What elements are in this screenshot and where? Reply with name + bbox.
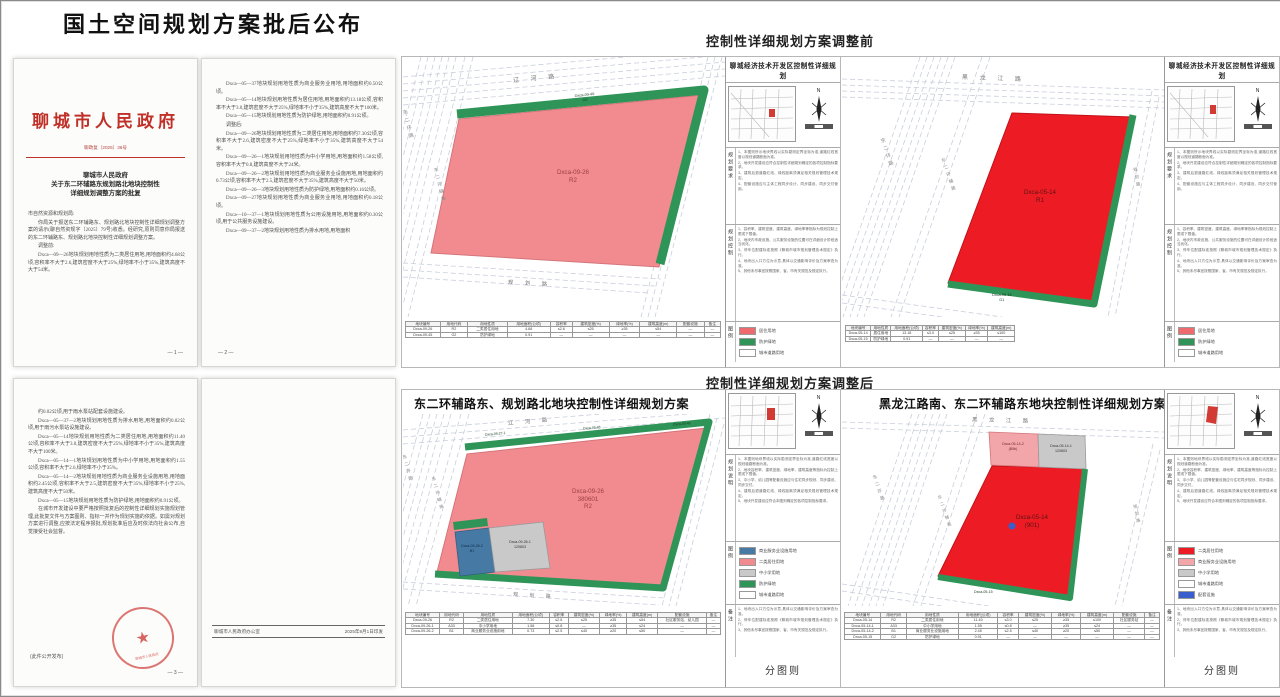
doc4-footer-office: 聊城市人民政府办公室 [214, 629, 260, 635]
mapC-index-table: 地块编号用地代码用地性质用地面积(公顷)容积率建筑密度(%)绿地率(%)建筑高度… [405, 612, 721, 635]
section-label-note: 备注 [1165, 605, 1175, 657]
mapC-parcel-label: Dxca-09-26380601R2 [548, 488, 628, 511]
mapD-drawing: 黑 龙 江 路 东二环路 东二环辅路 规划路 Dxca-05-14(901) D… [842, 414, 1164, 606]
doc1-agency: 聊城市人民政府 [14, 107, 197, 132]
legend-label: 城市道路用地 [1198, 581, 1223, 587]
north-label: N [1256, 395, 1260, 401]
doc-page-4: 聊城市人民政府办公室 2025年9月1日印发 [201, 378, 396, 687]
seal-text: 聊城市人民政府 [118, 648, 176, 665]
mapD-sidebar: N 规划说明 1、本图则地块界线以实际勘测定界坐标为准,道路红线宽度以规划道路断… [1164, 390, 1279, 687]
mapC-remark-notes: 1、地块出入口方位为示意,具体以交通影响评价及方案审查为准。2、停车位配建标准按… [736, 605, 840, 657]
legend-swatch [1178, 327, 1195, 336]
doc-page-1: 聊城市人民政府 聊政复〔2025〕36号 聊城市人民政府 关于东二环辅路东规划路… [13, 58, 198, 367]
doc1-body: 市自然资源和规划局: 你局关于报送东二环辅路东、规划路北地块控制性详细规划调整方… [28, 211, 185, 276]
mapB-ctrl-notes: 1、容积率、建筑密度、建筑高度、绿地率等指标为规划控制上限或下限值。2、地块内市… [1175, 225, 1279, 321]
doc3-page-no: — 3 — [167, 670, 183, 676]
mapD-green-label: Dxca-05-15 [974, 590, 993, 595]
doc1-page-no: — 1 — [167, 350, 183, 356]
north-arrow-icon [810, 403, 828, 429]
seal-star-icon: ★ [134, 627, 152, 650]
mapD-commercial-label: Dxca-05-14-2(B5b) [990, 442, 1036, 451]
mapC-legend: 商业服务业设施用地二类居住用地中小学用地防护绿地城市道路用地 [736, 544, 840, 602]
doc1-title: 聊城市人民政府 关于东二环辅路东规划路北地块控制性 详细规划调整方案的批复 [14, 171, 197, 198]
legend-label: 防护绿地 [1198, 339, 1215, 345]
mapD-remark-notes: 1、地块出入口方位为示意,具体以交通影响评价及方案审查为准。2、停车位配建标准按… [1175, 605, 1279, 657]
section-label-legend: 图例 [1165, 542, 1175, 604]
legend-swatch [1178, 338, 1195, 347]
legend-swatch [739, 591, 756, 600]
section-label-legend: 图例 [726, 542, 736, 604]
key-map [1167, 393, 1235, 449]
map-panel-after-right: 黑龙江路南、东二环辅路东地块控制性详细规划方案 黑 龙 江 路 东二环路 [840, 389, 1280, 688]
legend-label: 商业服务业设施用地 [759, 548, 797, 554]
mapA-req-notes: 1、本图则所示地块界线以实际勘测定界坐标为准,道路红线宽度以规划道路断面为准。2… [736, 148, 840, 224]
mapD-index-table: 地块编号用地代码用地性质用地面积(公顷)容积率建筑密度(%)绿地率(%)建筑高度… [844, 612, 1160, 640]
scale-bar [1244, 431, 1272, 436]
section-label-ctrl: 规划控制 [1165, 225, 1175, 321]
mapD-desc-notes: 1、本图则地块界线以实际勘测定界坐标为准,道路红线宽度以规划道路断面为准。2、地… [1175, 455, 1279, 541]
north-label: N [817, 395, 821, 401]
mapC-title: 东二环辅路东、规划路北地块控制性详细规划方案 [414, 395, 689, 412]
announcement-page: 国土空间规划方案批后公布 控制性详细规划方案调整前 控制性详细规划方案调整后 聊… [0, 0, 1280, 697]
mapC-desc-notes: 1、本图则地块界线以实际勘测定界坐标为准,道路红线宽度以规划道路断面为准。2、地… [736, 455, 840, 541]
key-map [728, 86, 796, 142]
north-label: N [1256, 88, 1260, 94]
doc3-body: 约0.02公顷,用于雨水泵站配套设施建设。Dxca—05—37—2地块规划用地性… [28, 409, 185, 538]
north-label: N [817, 88, 821, 94]
mapA-legend: 居住用地防护绿地城市道路用地 [736, 324, 840, 360]
doc1-red-rule [26, 157, 185, 158]
mapA-sidebar: 聊城经济技术开发区控制性详细规划 N [725, 57, 840, 367]
legend-label: 城市道路用地 [759, 350, 784, 356]
scale-bar [1244, 124, 1272, 129]
government-seal: ★ 聊城市人民政府 [106, 601, 180, 675]
section-label-note: 备注 [726, 605, 736, 657]
legend-label: 商业服务业设施用地 [1198, 559, 1236, 565]
mapB-index-table: 地块编号用地性质用地面积(公顷)容积率建筑密度(%)绿地率(%)建筑高度(m)D… [845, 325, 1015, 342]
mapA-ctrl-notes: 1、容积率、建筑密度、建筑高度、绿地率等指标为规划控制上限或下限值。2、地块内市… [736, 225, 840, 321]
mapB-req-notes: 1、本图则所示地块界线以实际勘测定界坐标为准,道路红线宽度以规划道路断面为准。2… [1175, 148, 1279, 224]
road-label-heilongjiang: 黑 龙 江 路 [972, 415, 1033, 425]
legend-swatch [739, 547, 756, 556]
mapD-caption: 分图则 [1165, 662, 1279, 677]
legend-label: 居住用地 [759, 328, 776, 334]
legend-swatch [739, 327, 756, 336]
legend-label: 防护绿地 [759, 339, 776, 345]
legend-swatch [1178, 349, 1195, 358]
map-panel-before-left: 辽 河 路 东二环路 东二环辅路 规 划 路 Dxca-09-45G2 Dxca… [401, 56, 841, 368]
mapC-sidebar: N 规划说明 1、本图则地块界线以实际勘测定界坐标为准,道路红线宽度以规划道路断… [725, 390, 840, 687]
legend-label: 城市道路用地 [1198, 350, 1223, 356]
legend-swatch [1178, 569, 1195, 578]
legend-label: 二类居住用地 [759, 559, 784, 565]
mapA-index-table: 地块编号用地代码用地性质用地面积(公顷)容积率建筑密度(%)绿地率(%)建筑高度… [405, 321, 721, 338]
legend-swatch [1178, 591, 1195, 600]
legend-swatch [1178, 558, 1195, 567]
legend-swatch [739, 558, 756, 567]
doc-page-2: Dxca—05—37地块规划用地性质为商业服务业用地,用地面积约0.50公顷。D… [201, 58, 396, 367]
doc4-footer-date: 2025年9月1日印发 [345, 629, 383, 635]
mapD-residential-parcel [938, 466, 1084, 596]
mapD-school-label: Dxca-05-14-1120803 [1039, 444, 1083, 453]
key-map [728, 393, 796, 449]
section-label-req: 规划要求 [726, 148, 736, 224]
mapC-drawing: 辽 河 路 东二环路 东二环辅路 规 划 路 Dxca-09-27-1 Dxca… [403, 414, 725, 606]
north-arrow-icon [810, 96, 828, 122]
legend-label: 配套设施 [1198, 592, 1215, 598]
mapA-drawing: 辽 河 路 东二环路 东二环辅路 规 划 路 Dxca-09-45G2 Dxca… [403, 57, 725, 317]
doc3-open-note: (此件公开发布) [30, 653, 63, 660]
legend-swatch [739, 580, 756, 589]
section-label-req: 规划要求 [1165, 148, 1175, 224]
legend-label: 中小学用地 [759, 570, 780, 576]
north-arrow-icon [1249, 403, 1267, 429]
mapD-parcel-label: Dxca-05-14(901) [992, 514, 1072, 529]
mapC-school-label: Dxca-09-26-1120803 [499, 540, 541, 549]
mapA-sidebar-title: 聊城经济技术开发区控制性详细规划 [726, 57, 840, 83]
doc-page-3: 约0.02公顷,用于雨水泵站配套设施建设。Dxca—05—37—2地块规划用地性… [13, 378, 198, 687]
mapB-legend: 居住用地防护绿地城市道路用地 [1175, 324, 1279, 360]
doc1-number: 聊政复〔2025〕36号 [14, 145, 197, 151]
page-title: 国土空间规划方案批后公布 [63, 7, 363, 39]
mapB-residential-parcel [948, 113, 1132, 303]
section-label-ctrl: 规划控制 [726, 225, 736, 321]
legend-label: 防护绿地 [759, 581, 776, 587]
map-panel-after-left: 东二环辅路东、规划路北地块控制性详细规划方案 辽 河 路 东二环路 [401, 389, 841, 688]
scale-bar [805, 431, 833, 436]
legend-swatch [739, 349, 756, 358]
section-label-desc: 规划说明 [1165, 455, 1175, 541]
mapB-sidebar-title: 聊城经济技术开发区控制性详细规划 [1165, 57, 1279, 83]
legend-swatch [1178, 547, 1195, 556]
legend-swatch [739, 569, 756, 578]
section-label-legend: 图例 [726, 322, 736, 362]
mapB-parcel-label: Dxca-05-14R1 [1000, 189, 1080, 204]
legend-swatch [739, 338, 756, 347]
mapC-caption: 分图则 [726, 662, 840, 677]
legend-label: 二类居住用地 [1198, 548, 1223, 554]
mapB-sidebar: 聊城经济技术开发区控制性详细规划 N [1164, 57, 1279, 367]
doc2-body: Dxca—05—37地块规划用地性质为商业服务业用地,用地面积约0.50公顷。D… [216, 81, 383, 236]
legend-label: 中小学用地 [1198, 570, 1219, 576]
mapD-legend: 二类居住用地商业服务业设施用地中小学用地城市道路用地配套设施 [1175, 544, 1279, 602]
legend-label: 居住用地 [1198, 328, 1215, 334]
scale-bar [805, 124, 833, 129]
key-map [1167, 86, 1235, 142]
mapC-commercial-label: Dxca-09-26-2B1 [453, 544, 491, 553]
north-arrow-icon [1249, 96, 1267, 122]
section-title-before: 控制性详细规划方案调整前 [706, 31, 874, 50]
legend-label: 城市道路用地 [759, 592, 784, 598]
section-label-legend: 图例 [1165, 322, 1175, 362]
legend-swatch [1178, 580, 1195, 589]
mapA-parcel-label: Dxca-09-26R2 [533, 169, 613, 184]
mapB-green-label: Dxca-05-15G1 [992, 293, 1012, 302]
map-panel-before-right: 黑 龙 江 路 东二环路 东二环辅路 规划路 Dxca-05-14R1 Dxca… [840, 56, 1280, 368]
doc4-footer: 聊城市人民政府办公室 2025年9月1日印发 [212, 625, 385, 638]
mapB-drawing: 黑 龙 江 路 东二环路 东二环辅路 规划路 Dxca-05-14R1 Dxca… [842, 57, 1164, 317]
doc2-page-no: — 2 — [218, 350, 234, 356]
mapD-title: 黑龙江路南、东二环辅路东地块控制性详细规划方案 [879, 395, 1167, 412]
section-label-desc: 规划说明 [726, 455, 736, 541]
